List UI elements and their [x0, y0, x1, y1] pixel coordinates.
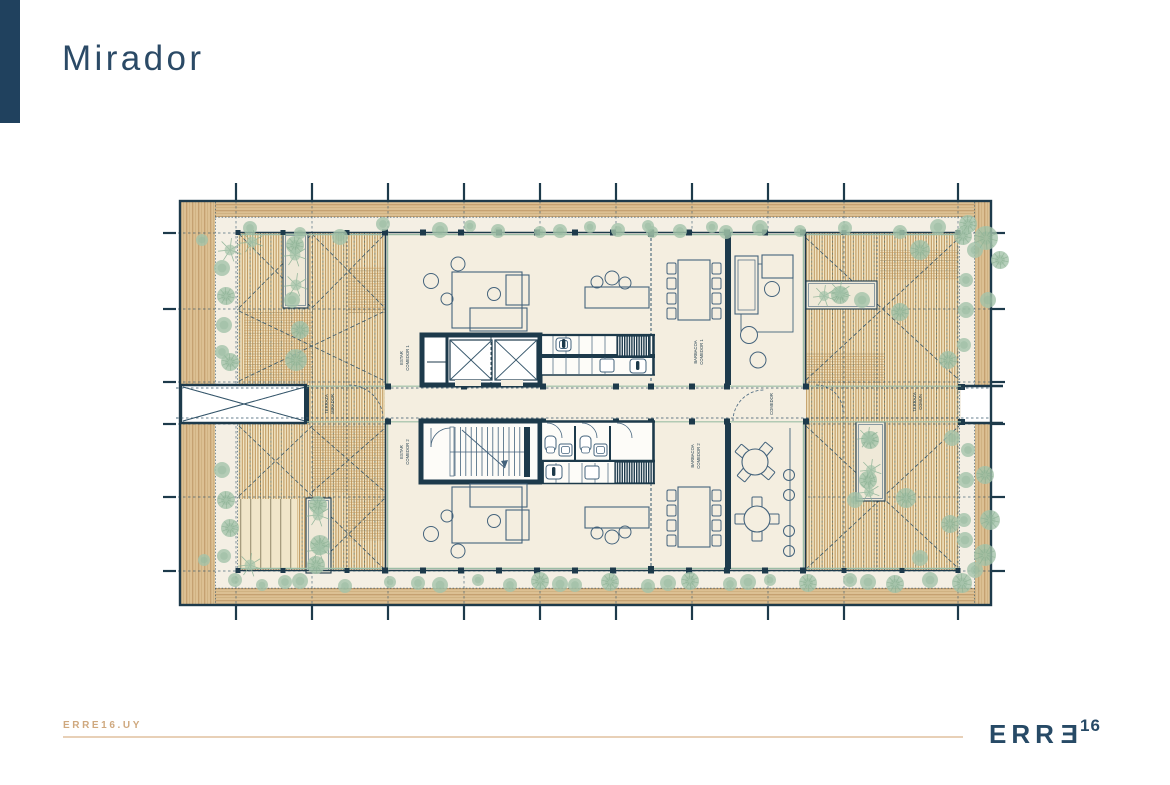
svg-text:COMEDOR 1: COMEDOR 1 [405, 345, 410, 371]
svg-text:COMEDOR 2: COMEDOR 2 [405, 439, 410, 465]
svg-text:E: E [1061, 719, 1078, 749]
svg-text:MIRADOR: MIRADOR [330, 394, 335, 414]
svg-text:Mirador: Mirador [62, 39, 204, 78]
svg-text:TERRAZA: TERRAZA [912, 392, 917, 412]
svg-text:COMEDOR 2: COMEDOR 2 [696, 443, 701, 469]
svg-text:ERR: ERR [989, 719, 1059, 749]
svg-text:ERRE16.UY: ERRE16.UY [63, 720, 142, 731]
svg-text:COMEDOR 1: COMEDOR 1 [699, 339, 704, 365]
svg-text:TERRAZA: TERRAZA [324, 394, 329, 414]
svg-text:ESTAR: ESTAR [399, 445, 404, 459]
svg-text:COMEDOR: COMEDOR [769, 393, 774, 415]
svg-text:BARBACOA: BARBACOA [690, 444, 695, 467]
svg-text:BARBACOA: BARBACOA [693, 340, 698, 363]
svg-text:16: 16 [1080, 716, 1101, 735]
svg-text:ESTAR: ESTAR [399, 351, 404, 365]
svg-text:COMÚN: COMÚN [918, 394, 923, 410]
